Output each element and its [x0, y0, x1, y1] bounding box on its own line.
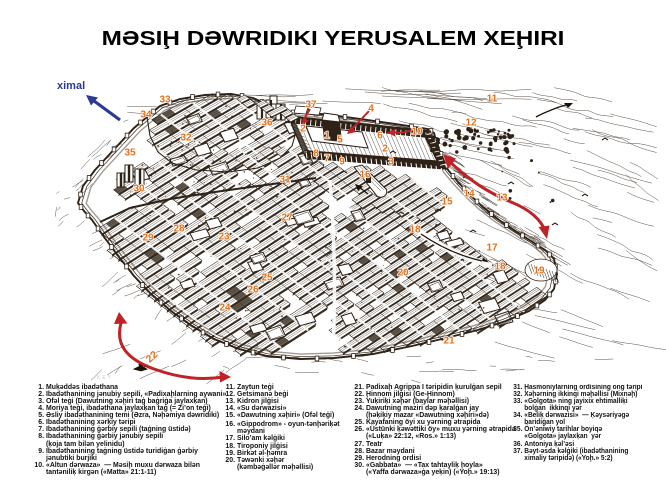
svg-text:14: 14 [463, 189, 475, 200]
svg-text:25: 25 [261, 273, 273, 284]
svg-text:27: 27 [281, 213, 293, 224]
svg-text:11: 11 [487, 94, 498, 105]
svg-text:21: 21 [443, 336, 455, 347]
svg-text:26: 26 [247, 285, 259, 296]
svg-text:35: 35 [124, 148, 136, 159]
svg-text:15: 15 [441, 197, 453, 208]
svg-text:20: 20 [397, 268, 409, 279]
svg-text:1: 1 [324, 131, 330, 142]
svg-text:37: 37 [305, 100, 317, 111]
svg-text:5: 5 [337, 135, 343, 146]
svg-text:7: 7 [324, 154, 330, 165]
svg-text:33: 33 [159, 95, 171, 106]
svg-text:23: 23 [218, 232, 230, 243]
svg-text:30: 30 [133, 184, 145, 195]
svg-text:10: 10 [411, 127, 423, 138]
svg-text:13: 13 [496, 193, 508, 204]
svg-text:8: 8 [313, 149, 319, 160]
svg-text:36: 36 [261, 118, 273, 129]
svg-text:16: 16 [359, 170, 371, 181]
svg-text:KEY: KEY [97, 375, 113, 381]
svg-text:31: 31 [279, 175, 291, 186]
svg-text:6: 6 [377, 131, 383, 142]
svg-text:12: 12 [465, 118, 477, 129]
svg-text:34: 34 [140, 110, 152, 121]
svg-text:29: 29 [142, 233, 154, 244]
svg-text:9: 9 [339, 157, 345, 168]
svg-text:24: 24 [219, 303, 231, 314]
svg-text:18: 18 [409, 225, 421, 236]
svg-text:19: 19 [533, 266, 545, 277]
svg-text:28: 28 [173, 224, 185, 235]
svg-text:18: 18 [494, 262, 506, 273]
svg-text:2: 2 [300, 124, 306, 135]
svg-text:17: 17 [486, 243, 498, 254]
svg-text:32: 32 [180, 133, 192, 144]
svg-text:3: 3 [388, 157, 394, 168]
svg-text:4: 4 [368, 104, 374, 115]
svg-text:22: 22 [144, 349, 161, 366]
svg-text:2: 2 [382, 144, 388, 155]
